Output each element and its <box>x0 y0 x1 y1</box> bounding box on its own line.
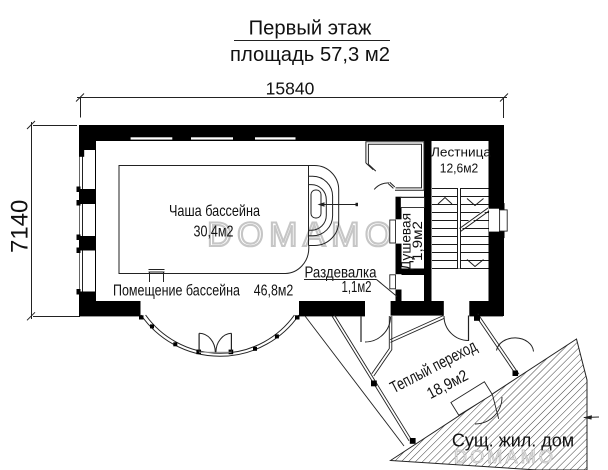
svg-text:46,8м2: 46,8м2 <box>254 283 294 300</box>
svg-text:Первый этаж: Первый этаж <box>249 18 372 40</box>
svg-text:Чаша бассейна: Чаша бассейна <box>169 203 260 220</box>
svg-text:DOMAMO: DOMAMO <box>454 447 556 467</box>
svg-text:15840: 15840 <box>266 79 315 99</box>
svg-text:Лестница: Лестница <box>431 145 492 160</box>
svg-text:Помещение бассейна: Помещение бассейна <box>113 283 240 300</box>
svg-text:12,6м2: 12,6м2 <box>440 160 479 175</box>
svg-text:1,9м2: 1,9м2 <box>410 221 425 261</box>
svg-text:DOMAMO: DOMAMO <box>207 216 397 254</box>
svg-text:1,1м2: 1,1м2 <box>342 279 372 296</box>
svg-text:площадь 57,3 м2: площадь 57,3 м2 <box>230 44 390 66</box>
svg-text:30,4м2: 30,4м2 <box>194 224 234 241</box>
svg-text:7140: 7140 <box>7 200 34 253</box>
